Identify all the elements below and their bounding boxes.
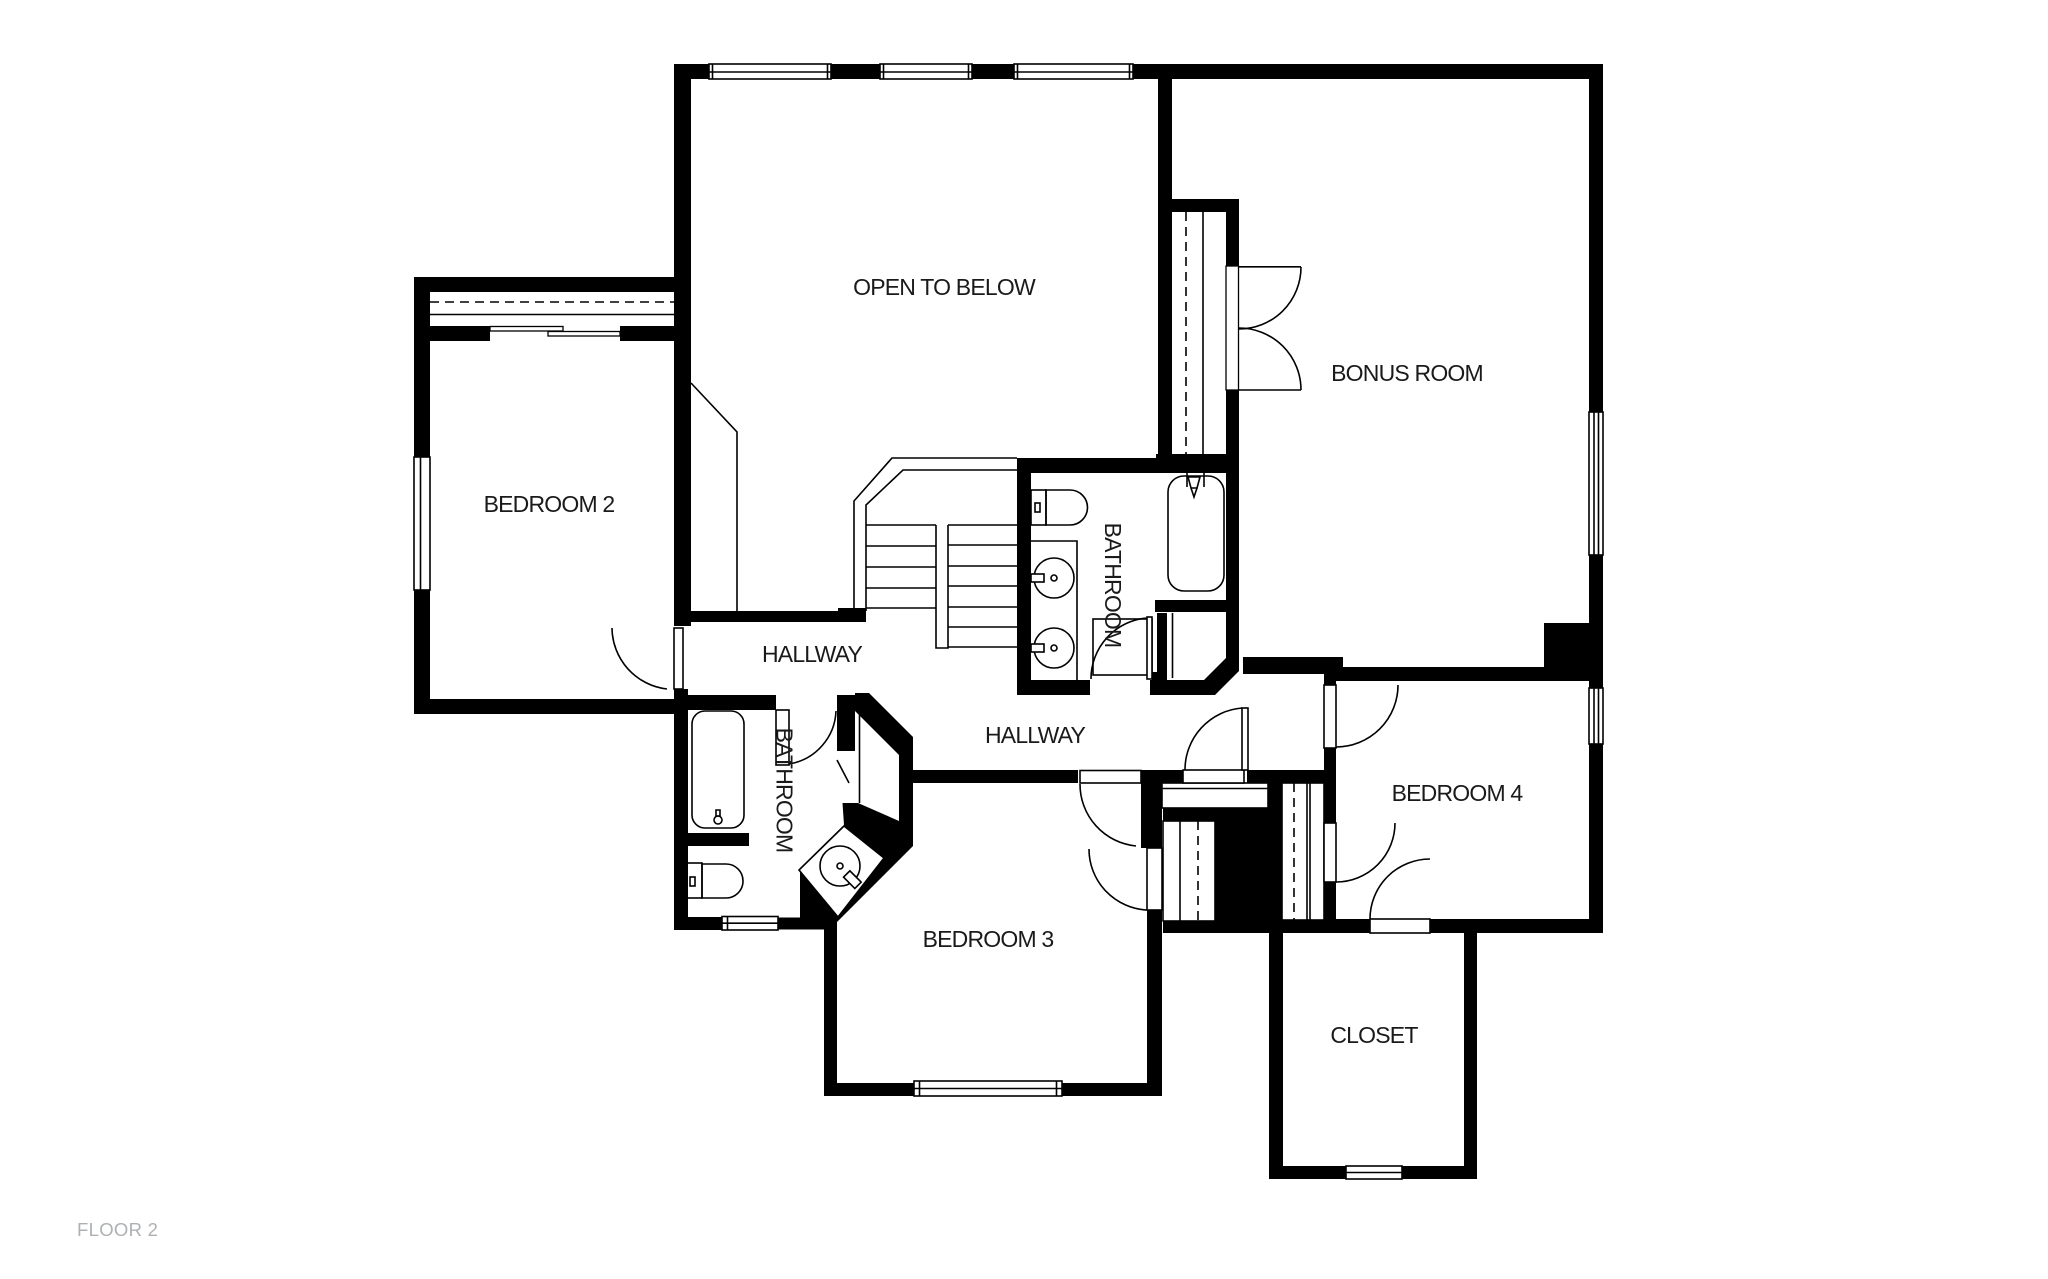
svg-text:BEDROOM 2: BEDROOM 2 [484, 491, 615, 517]
svg-text:BONUS ROOM: BONUS ROOM [1331, 360, 1483, 386]
svg-text:HALLWAY: HALLWAY [762, 641, 863, 667]
svg-text:BATHROOM: BATHROOM [1100, 523, 1126, 648]
svg-text:OPEN TO BELOW: OPEN TO BELOW [853, 274, 1036, 300]
svg-text:BATHROOM: BATHROOM [772, 728, 798, 853]
svg-text:FLOOR 2: FLOOR 2 [77, 1219, 158, 1240]
svg-text:HALLWAY: HALLWAY [985, 722, 1086, 748]
svg-text:BEDROOM 4: BEDROOM 4 [1392, 780, 1524, 806]
svg-text:CLOSET: CLOSET [1330, 1022, 1418, 1048]
svg-text:BEDROOM 3: BEDROOM 3 [923, 926, 1054, 952]
